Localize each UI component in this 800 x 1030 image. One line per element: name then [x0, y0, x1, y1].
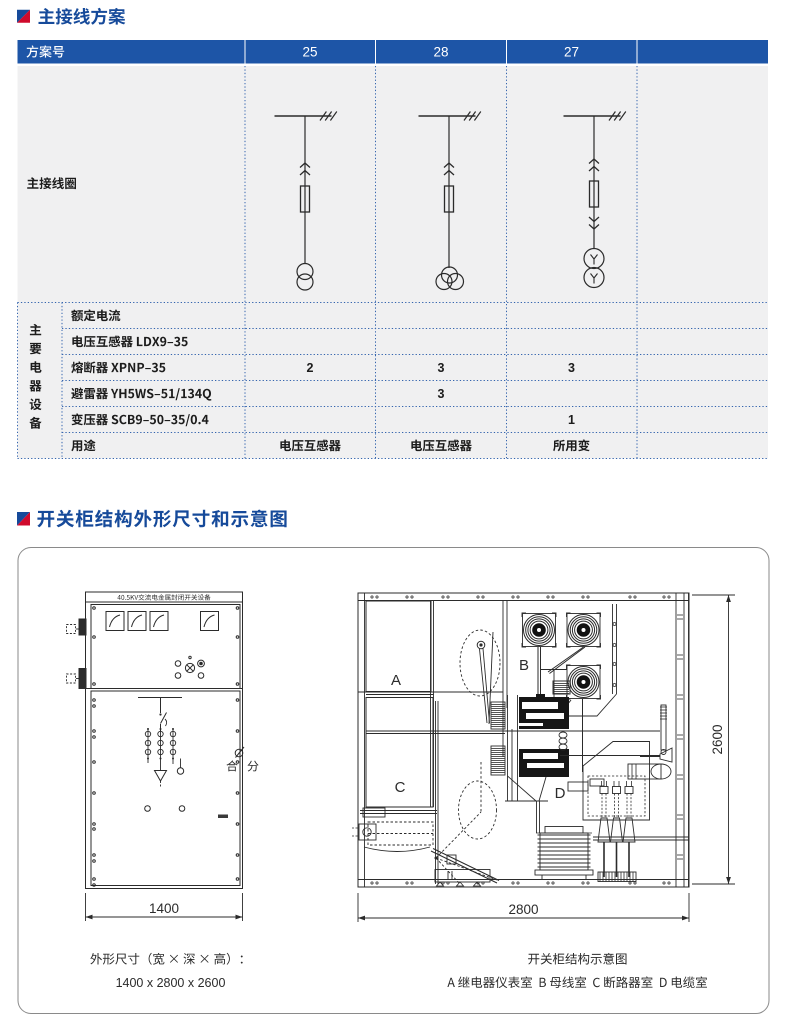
svg-text:2800: 2800: [508, 902, 538, 917]
svg-text:1400 x 2800 x 2600: 1400 x 2800 x 2600: [116, 976, 226, 990]
svg-text:27: 27: [564, 45, 579, 60]
svg-text:1400: 1400: [149, 901, 179, 916]
svg-text:A: A: [391, 672, 401, 689]
svg-text:3: 3: [438, 387, 445, 401]
svg-text:2: 2: [307, 361, 314, 375]
svg-text:D: D: [555, 785, 566, 802]
svg-text:3: 3: [568, 361, 575, 375]
svg-text:B: B: [519, 657, 529, 674]
svg-text:28: 28: [433, 45, 448, 60]
svg-text:C: C: [395, 779, 406, 796]
svg-text:2600: 2600: [710, 724, 725, 754]
svg-text:3: 3: [438, 361, 445, 375]
svg-text:1: 1: [568, 413, 575, 427]
svg-text:25: 25: [302, 45, 317, 60]
